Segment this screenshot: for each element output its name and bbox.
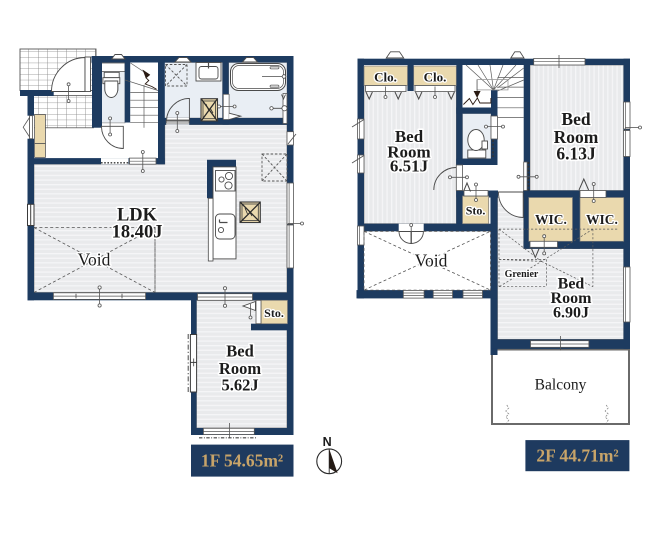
svg-text:2F 44.71m²: 2F 44.71m² (536, 446, 618, 466)
svg-text:Grenier: Grenier (505, 269, 539, 280)
svg-text:N: N (323, 435, 332, 449)
svg-text:Clo.: Clo. (374, 70, 397, 85)
svg-text:1F 54.65m²: 1F 54.65m² (201, 451, 283, 471)
svg-text:18.40J: 18.40J (112, 223, 163, 243)
svg-text:6.90J: 6.90J (553, 305, 589, 322)
svg-text:Bed: Bed (226, 342, 254, 361)
svg-text:Sto.: Sto. (264, 306, 284, 320)
svg-text:Void: Void (415, 251, 448, 271)
svg-text:WIC.: WIC. (535, 212, 567, 227)
svg-text:Sto.: Sto. (466, 204, 486, 218)
svg-text:Clo.: Clo. (424, 70, 447, 85)
svg-text:6.51J: 6.51J (390, 157, 429, 176)
svg-text:Bed: Bed (561, 109, 590, 129)
svg-text:Balcony: Balcony (535, 377, 587, 394)
svg-text:5.62J: 5.62J (221, 376, 258, 395)
svg-text:WIC.: WIC. (586, 212, 618, 227)
svg-text:6.13J: 6.13J (556, 144, 596, 164)
svg-text:Void: Void (78, 250, 111, 270)
